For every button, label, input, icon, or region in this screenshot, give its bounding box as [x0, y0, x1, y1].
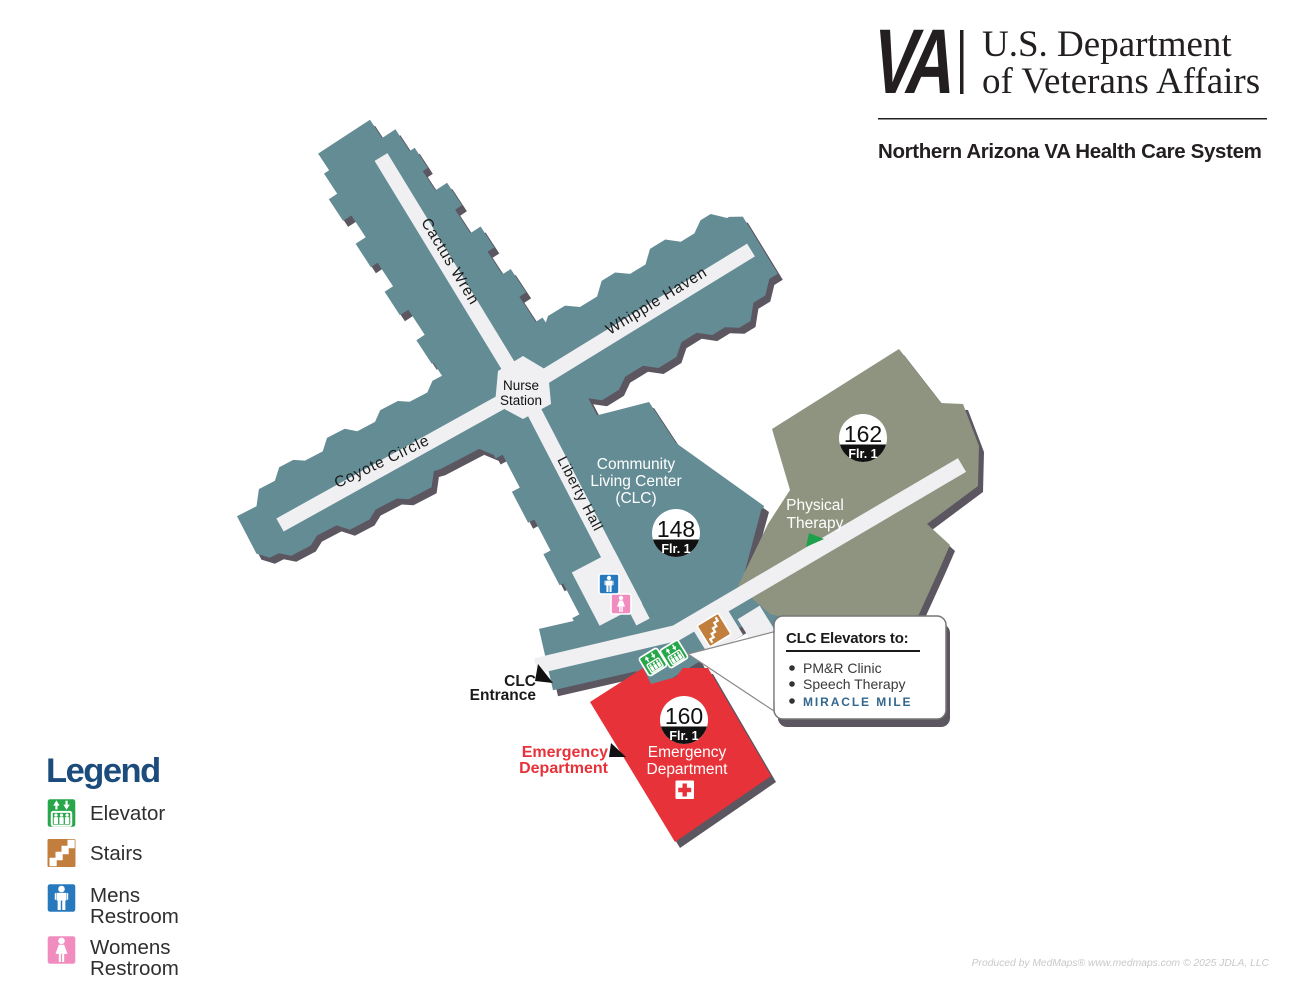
svg-text:Nurse: Nurse [503, 378, 539, 393]
svg-text:Mens: Mens [90, 884, 140, 907]
svg-text:CLC Elevators to:: CLC Elevators to: [786, 630, 908, 647]
svg-text:Department: Department [647, 761, 729, 778]
svg-text:162: 162 [844, 421, 882, 447]
svg-text:Stairs: Stairs [90, 842, 142, 865]
svg-text:of Veterans Affairs: of Veterans Affairs [982, 61, 1260, 102]
svg-text:Flr. 1: Flr. 1 [848, 447, 877, 461]
svg-text:160: 160 [665, 703, 703, 729]
svg-text:Living Center: Living Center [590, 473, 681, 490]
svg-text:PM&R Clinic: PM&R Clinic [803, 660, 882, 676]
svg-text:Produced by MedMaps® www.medm: Produced by MedMaps® www.medmaps.com © 2… [972, 958, 1270, 969]
svg-text:Emergency: Emergency [648, 744, 727, 761]
svg-text:Elevator: Elevator [90, 802, 165, 825]
svg-text:Community: Community [597, 456, 676, 473]
svg-text:Entrance: Entrance [470, 687, 537, 704]
svg-text:Flr. 1: Flr. 1 [669, 729, 698, 743]
svg-text:(CLC): (CLC) [615, 490, 656, 507]
svg-text:Therapy: Therapy [787, 515, 844, 532]
svg-text:Emergency: Emergency [522, 744, 608, 761]
svg-text:Restroom: Restroom [90, 905, 179, 928]
svg-text:Restroom: Restroom [90, 957, 179, 980]
svg-text:Speech Therapy: Speech Therapy [803, 676, 905, 692]
svg-text:Northern Arizona VA Health Car: Northern Arizona VA Health Care System [878, 140, 1262, 163]
svg-text:VA: VA [864, 11, 964, 114]
svg-text:Physical: Physical [786, 497, 844, 514]
svg-text:Department: Department [519, 760, 609, 777]
svg-text:Womens: Womens [90, 936, 171, 959]
svg-text:MIRACLE MILE: MIRACLE MILE [803, 695, 912, 709]
svg-text:Legend: Legend [46, 752, 160, 790]
svg-text:Station: Station [500, 393, 542, 408]
svg-text:148: 148 [657, 516, 695, 542]
svg-text:U.S. Department: U.S. Department [982, 24, 1232, 65]
svg-text:Flr. 1: Flr. 1 [661, 542, 690, 556]
